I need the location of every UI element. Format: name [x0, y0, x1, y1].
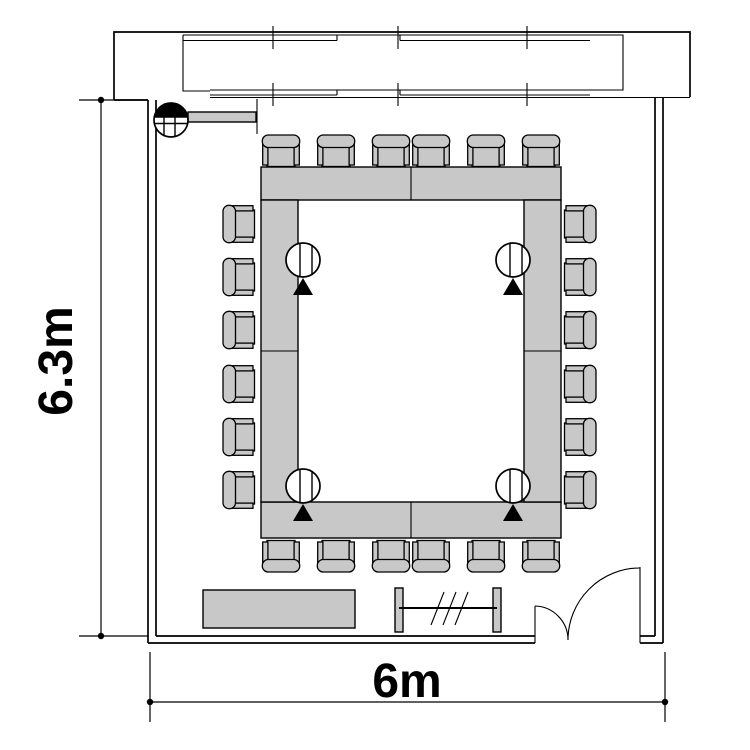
- chair: [565, 471, 597, 508]
- chair: [565, 311, 597, 348]
- chair: [262, 541, 299, 573]
- column-symbol: [154, 103, 188, 137]
- chair: [467, 541, 504, 573]
- height-dimension-label: 6.3m: [30, 306, 83, 415]
- door-swing-arc: [568, 568, 640, 640]
- chair: [412, 135, 449, 167]
- chair: [317, 135, 354, 167]
- floor-plan: 6.3m 6m: [0, 0, 750, 750]
- chair: [565, 205, 597, 242]
- width-dimension-label: 6m: [372, 655, 441, 708]
- chair: [372, 135, 409, 167]
- wall-shelf: [188, 99, 257, 134]
- equipment-rail: [395, 588, 501, 632]
- chair: [372, 541, 409, 573]
- chair: [262, 135, 299, 167]
- chair: [522, 135, 559, 167]
- chair: [223, 365, 255, 402]
- chair: [412, 541, 449, 573]
- window-wall: [114, 26, 690, 106]
- floor-plan-canvas: 6.3m 6m: [0, 0, 750, 750]
- chair: [223, 471, 255, 508]
- chair: [223, 418, 255, 455]
- height-dimension: 6.3m: [30, 97, 148, 639]
- chair: [565, 365, 597, 402]
- chair: [223, 258, 255, 295]
- width-dimension: 6m: [147, 652, 668, 722]
- door: [535, 567, 640, 643]
- chair: [522, 541, 559, 573]
- chair: [223, 205, 255, 242]
- chair: [565, 258, 597, 295]
- chair: [467, 135, 504, 167]
- microphone-symbols: [286, 243, 530, 521]
- chair: [317, 541, 354, 573]
- door-swing-arc-small: [535, 606, 568, 640]
- chair: [223, 311, 255, 348]
- chair: [565, 418, 597, 455]
- sideboard: [203, 590, 355, 628]
